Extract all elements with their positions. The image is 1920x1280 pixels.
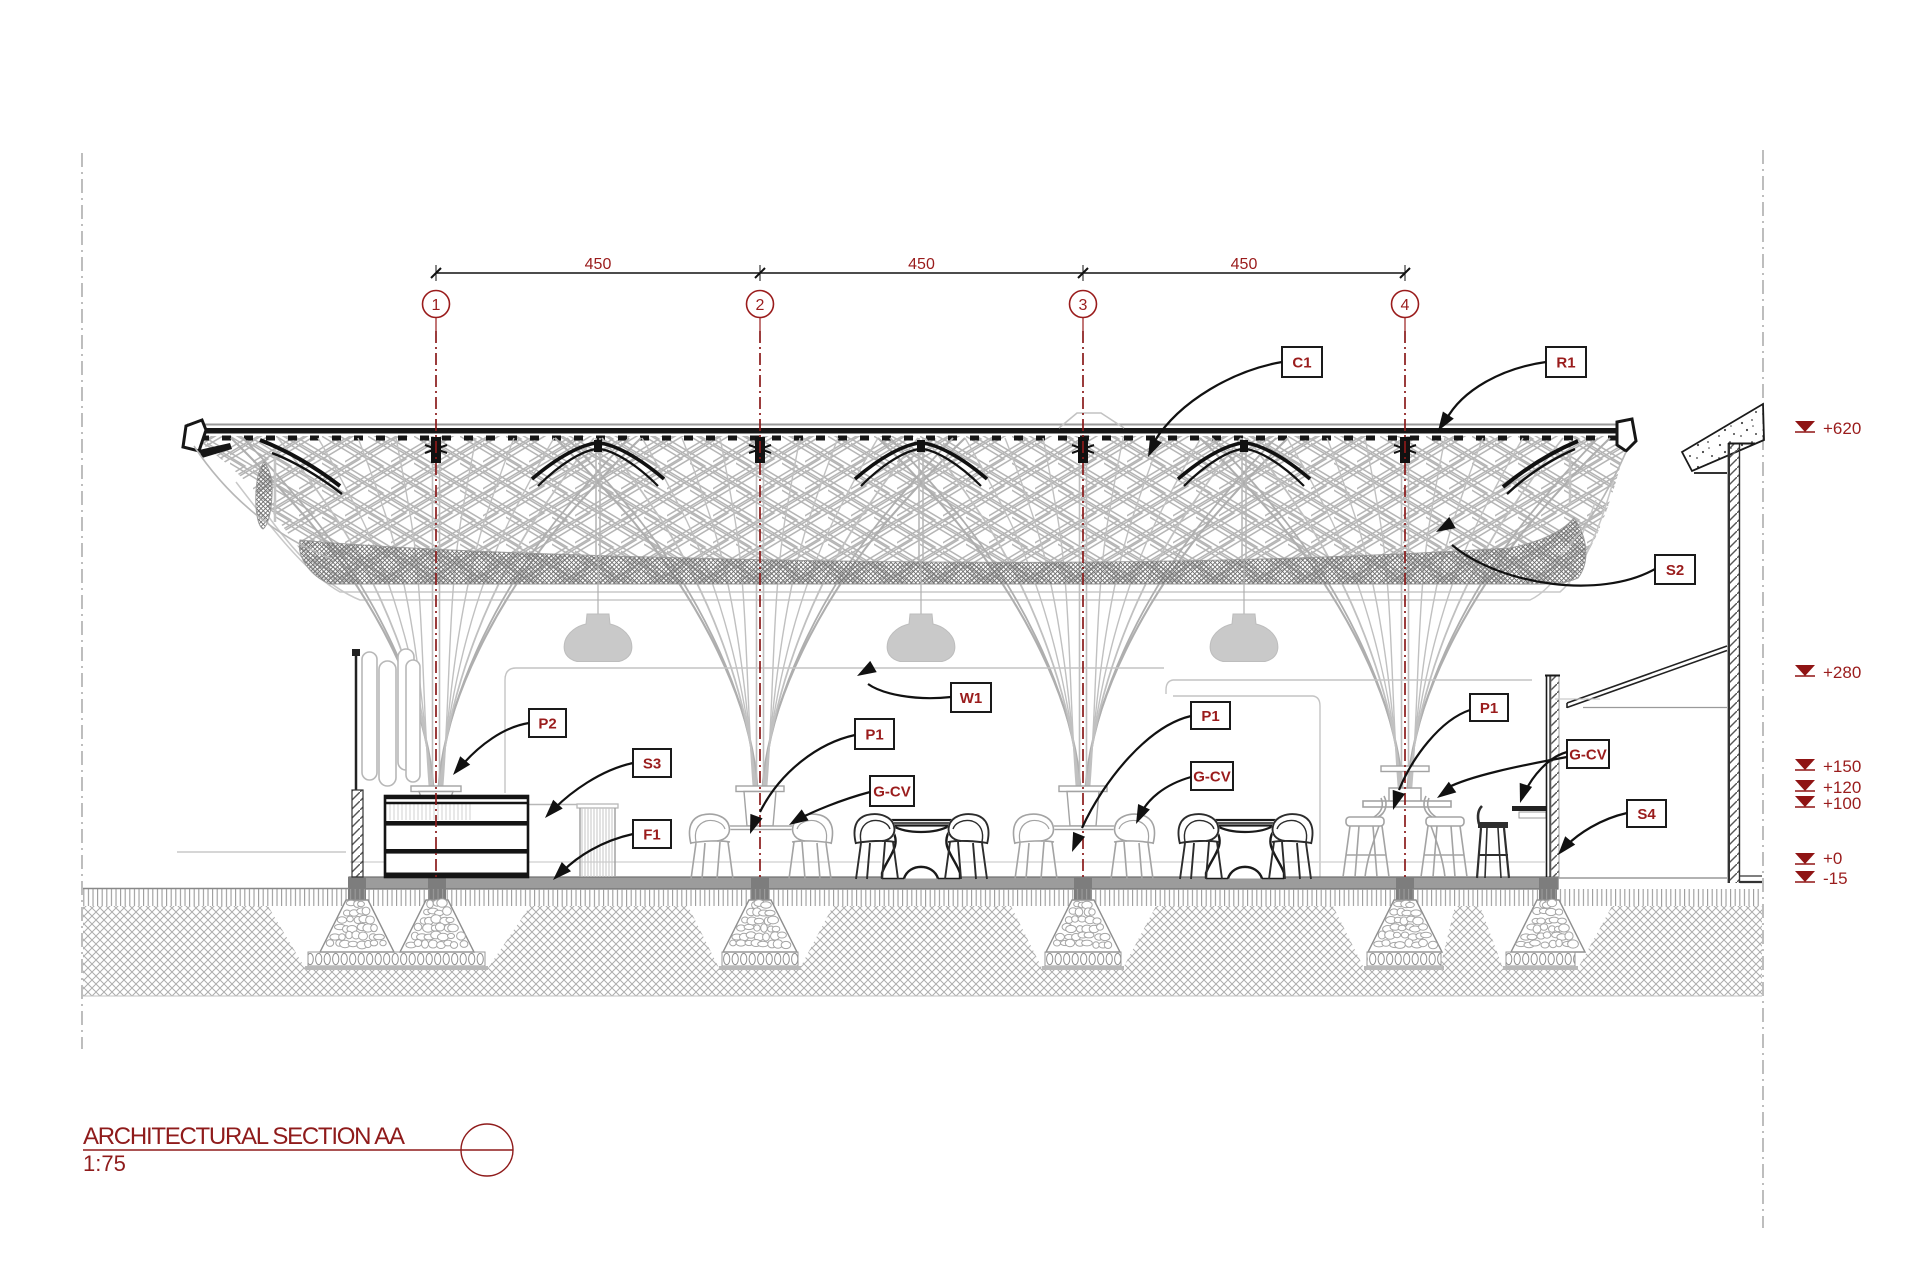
- svg-text:450: 450: [585, 256, 612, 273]
- svg-text:P1: P1: [1201, 708, 1219, 725]
- svg-text:1:75: 1:75: [83, 1151, 126, 1176]
- svg-text:3: 3: [1079, 297, 1088, 314]
- svg-text:2: 2: [756, 297, 765, 314]
- svg-text:-15: -15: [1823, 869, 1848, 888]
- svg-text:G-CV: G-CV: [1569, 746, 1607, 763]
- svg-text:F1: F1: [643, 826, 661, 843]
- svg-text:+280: +280: [1823, 663, 1861, 682]
- svg-text:G-CV: G-CV: [1193, 768, 1231, 785]
- svg-text:+0: +0: [1823, 849, 1842, 868]
- svg-text:ARCHITECTURAL SECTION AA: ARCHITECTURAL SECTION AA: [83, 1123, 405, 1150]
- svg-text:S3: S3: [643, 755, 661, 772]
- svg-text:450: 450: [908, 256, 935, 273]
- svg-text:+100: +100: [1823, 794, 1861, 813]
- svg-text:4: 4: [1401, 297, 1410, 314]
- svg-text:P2: P2: [538, 715, 556, 732]
- svg-text:+620: +620: [1823, 419, 1861, 438]
- svg-text:S4: S4: [1637, 806, 1656, 823]
- svg-text:+150: +150: [1823, 757, 1861, 776]
- svg-text:G-CV: G-CV: [873, 783, 911, 800]
- svg-text:C1: C1: [1292, 354, 1311, 371]
- svg-text:S2: S2: [1666, 562, 1684, 579]
- svg-text:P1: P1: [865, 726, 883, 743]
- svg-text:1: 1: [432, 297, 441, 314]
- svg-text:P1: P1: [1480, 700, 1498, 717]
- svg-text:W1: W1: [960, 690, 983, 707]
- svg-text:R1: R1: [1556, 354, 1575, 371]
- svg-text:450: 450: [1231, 256, 1258, 273]
